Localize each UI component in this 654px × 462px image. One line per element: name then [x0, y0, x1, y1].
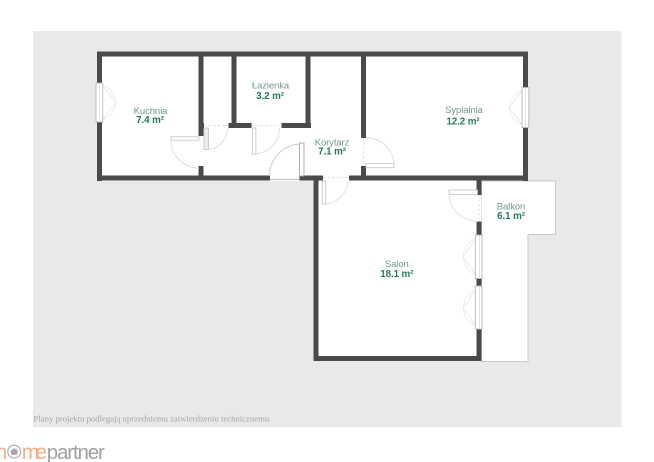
svg-text:Sypialnia: Sypialnia [445, 105, 483, 116]
svg-text:3.2 m²: 3.2 m² [256, 91, 285, 102]
svg-text:7.1 m²: 7.1 m² [318, 147, 347, 158]
svg-text:partner: partner [47, 441, 105, 462]
svg-text:12.2 m²: 12.2 m² [446, 117, 480, 128]
svg-text:7.4 m²: 7.4 m² [136, 115, 165, 126]
svg-text:6.1 m²: 6.1 m² [497, 211, 526, 222]
svg-text:me: me [22, 441, 47, 462]
svg-text:Plany projektu podlegają uprze: Plany projektu podlegają uprzedniemu zat… [34, 414, 270, 424]
svg-text:18.1 m²: 18.1 m² [380, 269, 414, 280]
svg-text:Łazienka: Łazienka [252, 81, 290, 92]
svg-text:h: h [0, 441, 7, 462]
